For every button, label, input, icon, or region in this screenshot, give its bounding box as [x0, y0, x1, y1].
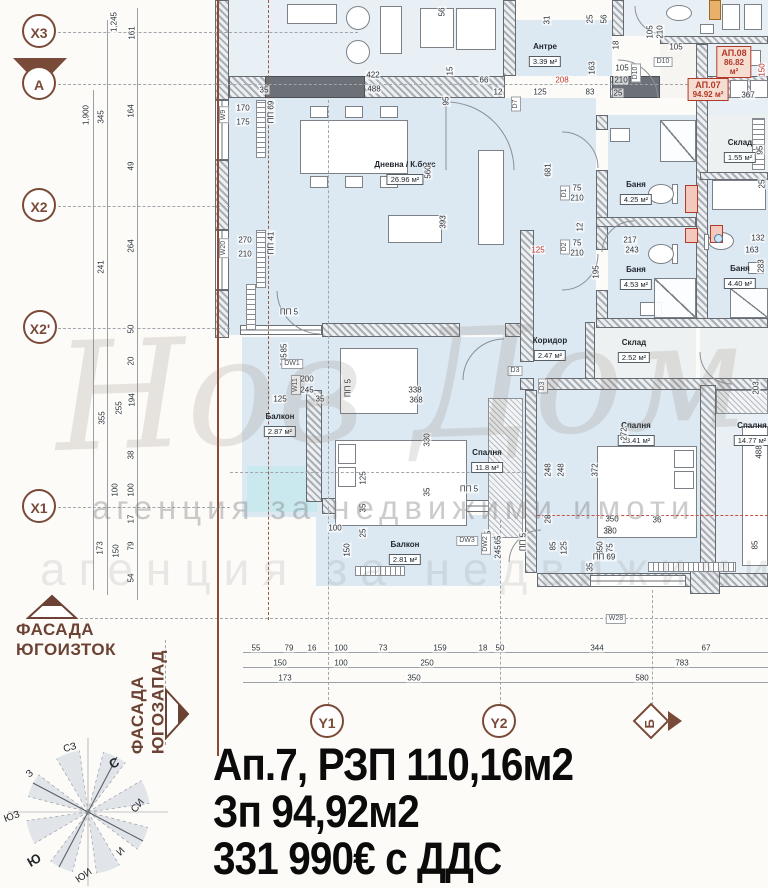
axis-marker-Y2: Y2: [482, 704, 516, 738]
dim-label: 210: [569, 249, 584, 258]
dim-label: 35: [259, 86, 270, 95]
opening-tag: D1: [560, 186, 570, 201]
dim-label: 195: [592, 264, 601, 279]
room-label: Спалня11.8 м²: [471, 448, 503, 475]
apartment-label: АП.0886.82 м²: [716, 46, 751, 78]
dim-label: 35: [423, 487, 432, 498]
room-area: 1.55 м²: [724, 152, 756, 163]
dim-label: 164: [127, 103, 136, 118]
dim-label: 95: [756, 145, 765, 156]
dim-label: 105: [614, 64, 629, 73]
dim-label: 1,900: [82, 104, 91, 126]
dim-label: 66: [479, 76, 490, 85]
room-label: Балкон2.81 м²: [389, 540, 421, 567]
dim-label: 248: [557, 462, 566, 477]
room-name: Антре: [529, 42, 561, 51]
dim-label: ПП 5: [279, 308, 299, 317]
dim-label: 125: [272, 395, 287, 404]
dim-label: 367: [740, 91, 755, 100]
room-area: 2.52 м²: [618, 352, 650, 363]
dim-label: 38: [127, 450, 136, 461]
dim-label: 210: [569, 194, 584, 203]
room-area: 2.87 м²: [264, 426, 296, 437]
dim-label: 73: [378, 644, 389, 653]
room-label: Коридор2.47 м²: [533, 336, 567, 363]
facade-southeast-label: ФАСАДА ЮГОИЗТОК: [16, 620, 116, 661]
room-name: Балкон: [264, 412, 296, 421]
dim-label: 18: [478, 644, 489, 653]
dim-label: 255: [115, 400, 124, 415]
dim-label: 368: [408, 396, 423, 405]
room-area: 3.39 м²: [529, 56, 561, 67]
room-name: Склад: [618, 338, 650, 347]
dim-label: 250: [419, 659, 434, 668]
dim-label: 161: [128, 25, 137, 40]
dim-label: 125: [359, 470, 368, 485]
title-block: Ап.7, РЗП 110,16м2 Зп 94,92м2 331 990€ с…: [213, 742, 573, 882]
dim-label: 100: [333, 659, 348, 668]
dim-label: 488: [755, 444, 764, 459]
apartment-area: 94.92 м²: [693, 90, 724, 99]
dim-label: 150: [112, 543, 121, 558]
dim-label: 200: [299, 375, 314, 384]
dim-label: 35: [359, 503, 368, 514]
apartment-number: АП.07: [693, 80, 724, 90]
dim-label: 17: [127, 514, 136, 525]
dim-label: 270: [237, 236, 252, 245]
room-area: 4.40 м²: [724, 278, 756, 289]
dim-label: 150: [758, 62, 767, 77]
dim-label: 210: [613, 76, 628, 85]
dim-label: 16: [307, 644, 318, 653]
axis-marker-A: A: [22, 66, 56, 100]
dim-label: 344: [589, 644, 604, 653]
axis-label: Б: [638, 711, 664, 737]
axis-marker-X2': X2': [23, 310, 57, 344]
opening-tag: DW1: [281, 359, 303, 369]
opening-tag: D3: [538, 379, 548, 394]
facade-se-line2: ЮГОИЗТОК: [16, 640, 116, 660]
room-label: Склад2.52 м²: [618, 338, 650, 365]
dim-label: 163: [744, 246, 759, 255]
facade-sw-triangle-icon: [164, 688, 190, 740]
opening-tag: W9: [219, 107, 229, 124]
dim-label: 173: [277, 674, 292, 683]
dim-label: 28: [544, 514, 553, 525]
dim-label: 35: [315, 395, 326, 404]
dim-label: 372: [591, 462, 600, 477]
opening-tag: W11: [291, 375, 301, 395]
dim-label: 105: [646, 24, 655, 39]
dim-label: 150: [343, 542, 352, 557]
axis-marker-X1: X1: [22, 489, 56, 523]
dim-label: 163: [588, 60, 597, 75]
dim-label: ПП 41: [267, 231, 276, 256]
room-area: 2.47 м²: [534, 350, 566, 361]
dim-label: 170: [235, 104, 250, 113]
dim-label: 100: [111, 482, 120, 497]
room-label: Баня4.40 м²: [724, 264, 756, 291]
dim-label: 49: [127, 161, 136, 172]
dim-label: 50: [127, 324, 136, 335]
dim-label: 83: [585, 88, 596, 97]
dim-label: 12: [493, 88, 504, 97]
dim-label: 560: [424, 164, 433, 179]
dim-label: 681: [544, 162, 553, 177]
opening-tag: D2: [560, 240, 570, 255]
dim-label: 241: [97, 259, 106, 274]
dim-label: 125: [560, 540, 569, 555]
dim-label: 355: [98, 410, 107, 425]
dim-label: 1,245: [110, 11, 119, 33]
title-line-area: Зп 94,92м2: [213, 789, 573, 836]
room-name: Спалня: [734, 421, 768, 430]
facade-se-line1: ФАСАДА: [16, 620, 116, 640]
dim-label: 248: [544, 462, 553, 477]
axis-marker-Б: Б: [633, 703, 670, 740]
room-label: Антре3.39 м²: [529, 42, 561, 69]
apartment-label: АП.0794.92 м²: [688, 78, 729, 101]
axis-marker-Y1: Y1: [310, 704, 344, 738]
dim-label: 132: [750, 234, 765, 243]
room-label: Склад1.55 м²: [724, 138, 756, 165]
room-name: Склад: [724, 138, 756, 147]
dim-label: ПП 69: [592, 553, 617, 562]
apartment-area: 86.82 м²: [721, 58, 746, 76]
dim-label: 56: [600, 14, 609, 25]
title-line-price: 331 990€ с ДДС: [213, 836, 573, 883]
dim-label: 18: [612, 40, 621, 51]
room-name: Баня: [724, 264, 756, 273]
dim-label: 100: [127, 482, 136, 497]
dim-label: 25: [613, 89, 624, 98]
dim-label: 208: [554, 76, 569, 85]
dim-label: 20: [127, 356, 136, 367]
dim-label: ПП 5: [459, 485, 479, 494]
opening-tag: D10: [654, 57, 673, 67]
dim-label: 159: [432, 644, 447, 653]
room-label: Баня4.53 м²: [620, 265, 652, 292]
room-name: Баня: [620, 265, 652, 274]
dim-label: ПП 5: [344, 378, 353, 398]
apartment-number: АП.08: [721, 48, 746, 58]
dim-label: 283: [757, 258, 766, 273]
dim-label: 380: [602, 527, 617, 536]
room-label: Баня4.25 м²: [620, 180, 652, 207]
dim-label: 36: [652, 516, 663, 525]
dim-label: 173: [96, 540, 105, 555]
dim-label: 580: [634, 674, 649, 683]
dim-label: 12: [576, 222, 585, 233]
dim-label: 194: [128, 392, 137, 407]
opening-tag: D7: [511, 97, 521, 112]
dim-label: 245: [299, 386, 314, 395]
dim-label: 272: [620, 426, 629, 441]
opening-tag: DW2: [481, 533, 491, 555]
dim-label: 25: [359, 528, 368, 539]
dim-label: 50: [495, 644, 506, 653]
dim-label: 350: [406, 674, 421, 683]
dim-label: 203: [752, 380, 761, 395]
opening-tag: DW3: [456, 536, 478, 546]
dim-label: 125: [530, 246, 545, 255]
dim-label: 95: [442, 96, 451, 107]
axis-marker-X2: X2: [22, 188, 56, 222]
dim-label: 35: [586, 562, 595, 573]
dim-label: 393: [439, 214, 448, 229]
room-area: 11.8 м²: [471, 462, 503, 473]
dim-label: 25: [586, 14, 595, 25]
dim-label: 210: [237, 250, 252, 259]
dim-label: 245: [494, 544, 503, 559]
dim-label: 264: [127, 238, 136, 253]
opening-tag: W20: [219, 238, 229, 258]
room-area: 4.25 м²: [620, 194, 652, 205]
room-name: Балкон: [389, 540, 421, 549]
opening-tag: W28: [606, 614, 626, 624]
dim-label: 79: [284, 644, 295, 653]
room-name: Коридор: [533, 336, 567, 345]
dim-label: 56: [438, 7, 447, 18]
dim-label: 54: [127, 573, 136, 584]
dim-label: 125: [532, 88, 547, 97]
room-name: Спалня: [471, 448, 503, 457]
dim-label: 210: [656, 24, 665, 39]
facade-southwest-label: ФАСАДА ЮГОЗАПАД: [128, 650, 169, 754]
room-area: 2.81 м²: [389, 554, 421, 565]
dim-label: ПП 5: [519, 532, 528, 552]
dim-label: ПП 69: [267, 100, 276, 125]
dim-label: 75: [572, 184, 583, 193]
dim-label: 15: [446, 66, 455, 77]
dim-label: 243: [624, 246, 639, 255]
dim-label: 338: [407, 386, 422, 395]
dim-label: 330: [423, 432, 432, 447]
dim-label: 350: [604, 515, 619, 524]
dim-label: 85: [751, 540, 760, 551]
room-area: 4.53 м²: [620, 279, 652, 290]
dim-label: 105: [668, 43, 683, 52]
dim-label: 100: [327, 524, 342, 533]
dim-label: 67: [701, 644, 712, 653]
room-label: Балкон2.87 м²: [264, 412, 296, 439]
dim-label: 488: [366, 85, 381, 94]
dim-label: 422: [365, 71, 380, 80]
dim-label: 100: [333, 644, 348, 653]
dim-label: 150: [272, 659, 287, 668]
dim-label: 75: [572, 239, 583, 248]
opening-tag: D3: [508, 366, 523, 376]
dim-label: 79: [127, 541, 136, 552]
dim-label: 175: [235, 118, 250, 127]
title-line-apartment: Ап.7, РЗП 110,16м2: [213, 742, 573, 789]
dim-label: 55: [251, 644, 262, 653]
dim-label: 345: [97, 109, 106, 124]
opening-tag: D10: [631, 64, 641, 83]
dim-label: 783: [674, 659, 689, 668]
room-name: Баня: [620, 180, 652, 189]
room-area: 26.96 м²: [387, 174, 424, 185]
facade-se-triangle-icon: [26, 594, 78, 620]
dim-label: 217: [622, 236, 637, 245]
axis-marker-X3: X3: [22, 14, 56, 48]
dim-label: 85: [549, 541, 558, 552]
dim-label: 31: [543, 15, 552, 26]
dim-label: 25: [758, 179, 767, 190]
facade-sw-line1: ФАСАДА: [128, 650, 148, 754]
floorplan-sheet: Нов Дом агенция за недвижими имоти агенц…: [0, 0, 768, 888]
